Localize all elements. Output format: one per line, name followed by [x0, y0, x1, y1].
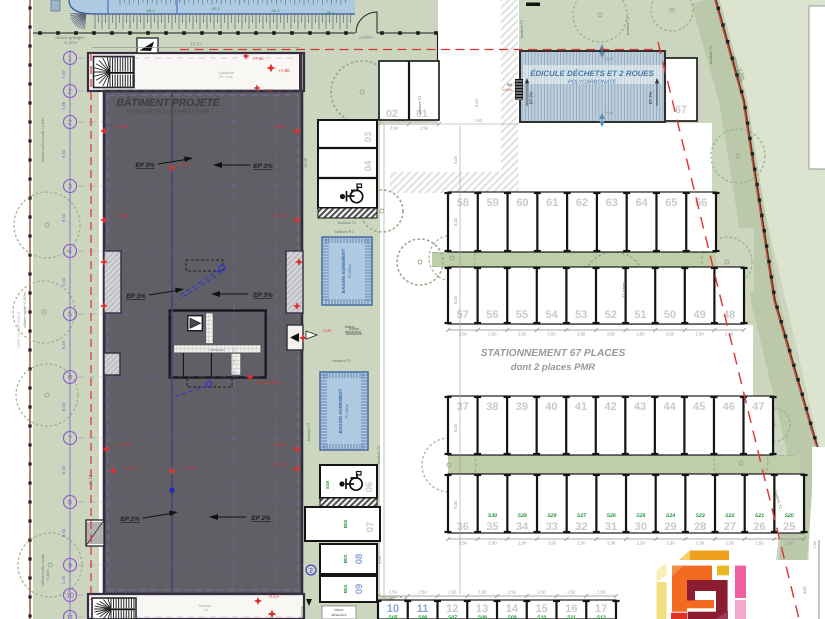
svg-text:4,49: 4,49 — [61, 70, 66, 79]
svg-text:S20: S20 — [785, 513, 794, 519]
svg-text:bordure P1: bordure P1 — [333, 359, 352, 363]
svg-text:36: 36 — [457, 521, 469, 533]
svg-text:67: 67 — [675, 104, 687, 116]
svg-text:4: 4 — [68, 249, 72, 256]
svg-text:S05: S05 — [388, 615, 397, 619]
svg-text:2,50: 2,50 — [607, 541, 616, 546]
svg-text:13: 13 — [476, 603, 488, 615]
svg-text:41: 41 — [575, 401, 587, 413]
svg-text:EP 2%: EP 2% — [120, 516, 140, 523]
svg-text:2,50: 2,50 — [597, 590, 606, 595]
svg-text:bordure T2: bordure T2 — [418, 96, 422, 115]
svg-text:clôture treillis soudé: clôture treillis soudé — [41, 554, 45, 586]
svg-text:S26: S26 — [607, 513, 616, 519]
svg-text:2,50: 2,50 — [637, 541, 646, 546]
svg-text:S09: S09 — [507, 615, 516, 619]
svg-text:ÉTANCHÉITÉ AUTOPROTÉGÉE: ÉTANCHÉITÉ AUTOPROTÉGÉE — [127, 109, 210, 116]
svg-text:bordure T2: bordure T2 — [520, 20, 524, 39]
svg-text:5,00: 5,00 — [453, 500, 458, 509]
svg-text:+10,96: +10,96 — [117, 442, 131, 447]
svg-text:2,50: 2,50 — [567, 590, 576, 595]
svg-text:2,50: 2,50 — [577, 541, 586, 546]
svg-text:12: 12 — [446, 603, 458, 615]
svg-text:S29: S29 — [518, 513, 527, 519]
svg-text:béton: béton — [335, 608, 344, 612]
svg-text:43: 43 — [634, 401, 646, 413]
svg-text:6,00: 6,00 — [377, 555, 382, 564]
svg-text:bordure T2: bordure T2 — [338, 221, 357, 225]
svg-text:63: 63 — [606, 197, 618, 209]
svg-text:désactivé: désactivé — [331, 613, 346, 617]
svg-text:2,50: 2,50 — [389, 590, 398, 595]
svg-text:6,20: 6,20 — [474, 98, 479, 107]
svg-text:S23: S23 — [696, 513, 705, 519]
svg-text:31: 31 — [605, 521, 617, 533]
svg-text:25: 25 — [783, 521, 795, 533]
svg-text:EP 3%: EP 3% — [253, 292, 273, 299]
svg-text:+7,45: +7,45 — [252, 56, 264, 61]
svg-text:18,98: 18,98 — [605, 111, 614, 115]
svg-text:2,50: 2,50 — [548, 541, 557, 546]
svg-text:02: 02 — [386, 108, 398, 120]
svg-text:17: 17 — [595, 603, 607, 615]
svg-text:EP 3%: EP 3% — [648, 91, 653, 104]
svg-text:37: 37 — [457, 401, 469, 413]
svg-text:42: 42 — [604, 401, 616, 413]
svg-text:28: 28 — [694, 521, 706, 533]
svg-text:8,40: 8,40 — [61, 402, 66, 411]
svg-text:44: 44 — [664, 401, 677, 413]
svg-text:+10,96: +10,96 — [115, 124, 129, 129]
svg-text:07: 07 — [365, 522, 376, 533]
svg-text:EP 3%: EP 3% — [135, 162, 155, 169]
svg-text:béton: béton — [345, 325, 355, 329]
svg-text:57: 57 — [457, 309, 469, 321]
svg-text:clôture rigide +1,60m: clôture rigide +1,60m — [23, 292, 27, 328]
svg-text:2,50: 2,50 — [666, 541, 675, 546]
svg-text:03: 03 — [363, 132, 374, 143]
svg-text:3: 3 — [68, 184, 72, 191]
svg-text:2,50: 2,50 — [478, 590, 487, 595]
svg-text:S22: S22 — [725, 513, 734, 519]
svg-text:10: 10 — [387, 603, 399, 615]
svg-text:32: 32 — [575, 521, 587, 533]
svg-text:2,50: 2,50 — [419, 590, 428, 595]
svg-text:5,00: 5,00 — [453, 423, 458, 432]
svg-text:39: 39 — [516, 401, 528, 413]
svg-text:EP 3%: EP 3% — [529, 91, 534, 104]
svg-text:6,40: 6,40 — [61, 149, 66, 158]
svg-text:16,68: 16,68 — [303, 157, 308, 168]
svg-text:+7,4: +7,4 — [202, 608, 209, 612]
svg-text:2,50: 2,50 — [488, 541, 497, 546]
svg-text:2,50: 2,50 — [607, 332, 616, 337]
svg-text:-46,4: -46,4 — [145, 8, 155, 13]
svg-text:+10,96: +10,96 — [272, 124, 286, 129]
svg-text:bordure T2: bordure T2 — [377, 446, 381, 465]
svg-text:+10,98: +10,98 — [115, 213, 129, 218]
svg-text:bordure T2: bordure T2 — [626, 17, 630, 36]
svg-text:53: 53 — [575, 309, 587, 321]
svg-text:62: 62 — [576, 197, 588, 209]
svg-text:2,50: 2,50 — [538, 590, 547, 595]
svg-text:2,50: 2,50 — [577, 332, 586, 337]
svg-text:+7,80: +7,80 — [278, 68, 290, 73]
svg-text:2,50: 2,50 — [696, 541, 705, 546]
svg-text:POLYCARBONATE: POLYCARBONATE — [568, 80, 616, 86]
svg-text:+11,06: +11,06 — [272, 462, 285, 467]
svg-text:08: 08 — [354, 554, 365, 565]
svg-text:dont 2 places PMR: dont 2 places PMR — [511, 362, 596, 373]
svg-text:+1,60m: +1,60m — [46, 569, 50, 581]
svg-text:-46,4: -46,4 — [210, 6, 220, 11]
svg-text:2,50: 2,50 — [448, 590, 457, 595]
svg-text:14: 14 — [506, 603, 519, 615]
svg-text:S07: S07 — [448, 615, 458, 619]
svg-text:38: 38 — [486, 401, 498, 413]
svg-text:1': 1' — [67, 89, 72, 96]
svg-text:S06: S06 — [418, 615, 427, 619]
svg-text:58: 58 — [457, 197, 469, 209]
svg-text:2,50: 2,50 — [508, 590, 517, 595]
svg-text:2,50: 2,50 — [696, 332, 705, 337]
svg-text:33: 33 — [546, 521, 558, 533]
svg-text:2,50: 2,50 — [518, 332, 527, 337]
svg-text:désactivé: désactivé — [345, 330, 361, 334]
svg-text:34: 34 — [516, 521, 529, 533]
svg-text:+7,50: +7,50 — [263, 88, 274, 93]
svg-text:2,88: 2,88 — [61, 101, 66, 110]
svg-text:+10,91: +10,91 — [183, 465, 197, 470]
svg-text:+1,5%: +1,5% — [502, 88, 512, 92]
svg-text:56: 56 — [486, 309, 498, 321]
svg-text:bordure T2: bordure T2 — [709, 46, 713, 65]
svg-text:9: 9 — [68, 563, 72, 570]
svg-text:5: 5 — [68, 312, 72, 319]
svg-text:04: 04 — [363, 160, 374, 171]
svg-text:8,40: 8,40 — [61, 528, 66, 537]
svg-text:11: 11 — [66, 615, 73, 619]
svg-text:16: 16 — [565, 603, 577, 615]
svg-text:P=30cm: P=30cm — [348, 264, 352, 278]
svg-text:46: 46 — [723, 401, 735, 413]
svg-text:bordure T2: bordure T2 — [307, 423, 311, 442]
svg-text:6: 6 — [68, 375, 72, 382]
svg-text:B02: B02 — [343, 519, 348, 528]
svg-text:2: 2 — [68, 120, 72, 127]
svg-text:S21: S21 — [755, 513, 764, 519]
svg-text:-0,00: -0,00 — [322, 328, 332, 333]
svg-text:2,30: 2,30 — [61, 575, 66, 584]
svg-text:64: 64 — [635, 197, 648, 209]
svg-text:S08: S08 — [478, 615, 487, 619]
svg-text:40: 40 — [545, 401, 557, 413]
svg-text:30: 30 — [635, 521, 647, 533]
svg-text:2: 2 — [309, 568, 313, 575]
svg-text:61: 61 — [546, 197, 558, 209]
svg-text:clôture treillis soudé +1,60m: clôture treillis soudé +1,60m — [41, 118, 45, 163]
svg-text:+11,06: +11,06 — [124, 465, 137, 470]
svg-text:2,50: 2,50 — [488, 332, 497, 337]
svg-text:S10: S10 — [537, 615, 546, 619]
svg-text:45: 45 — [693, 401, 705, 413]
svg-text:BASSIN AGREMENT: BASSIN AGREMENT — [341, 248, 346, 293]
svg-text:S25: S25 — [636, 513, 645, 519]
svg-text:8,40: 8,40 — [61, 213, 66, 222]
svg-text:51: 51 — [634, 309, 646, 321]
svg-text:portillon: portillon — [359, 35, 373, 40]
svg-text:50: 50 — [664, 309, 676, 321]
svg-text:bordure P1: bordure P1 — [335, 230, 354, 234]
svg-text:29: 29 — [664, 521, 676, 533]
svg-text:7,00: 7,00 — [474, 118, 483, 123]
svg-text:8: 8 — [68, 500, 72, 507]
svg-text:CANIVEAU: CANIVEAU — [209, 348, 224, 352]
svg-text:B03: B03 — [343, 554, 348, 563]
svg-text:S11: S11 — [567, 615, 576, 619]
svg-text:06: 06 — [364, 482, 375, 493]
svg-text:52: 52 — [605, 309, 617, 321]
svg-text:5,00: 5,00 — [453, 295, 458, 304]
svg-text:2,50: 2,50 — [666, 332, 675, 337]
svg-text:60: 60 — [516, 197, 528, 209]
svg-text:+10,91: +10,91 — [178, 162, 192, 167]
svg-text:47: 47 — [752, 401, 764, 413]
svg-text:+10,92 (PHE): +10,92 (PHE) — [256, 380, 282, 385]
svg-text:-46,4: -46,4 — [270, 8, 280, 13]
svg-text:32 arbres: 32 arbres — [622, 282, 626, 298]
svg-text:10: 10 — [66, 593, 74, 600]
svg-text:26: 26 — [753, 521, 765, 533]
svg-text:B04: B04 — [343, 584, 348, 593]
svg-text:+10,96: +10,96 — [272, 442, 286, 447]
svg-text:27: 27 — [724, 521, 736, 533]
svg-text:5,00: 5,00 — [453, 217, 458, 226]
svg-text:6,40: 6,40 — [61, 340, 66, 349]
svg-text:EP 3%: EP 3% — [126, 293, 146, 300]
svg-text:1,50: 1,50 — [813, 541, 817, 548]
svg-text:7: 7 — [68, 436, 72, 443]
svg-text:49: 49 — [693, 309, 705, 321]
svg-text:65: 65 — [665, 197, 677, 209]
svg-text:2,50: 2,50 — [548, 332, 557, 337]
svg-text:P=30cm: P=30cm — [345, 404, 349, 418]
svg-text:2,50: 2,50 — [420, 126, 429, 131]
svg-text:S24: S24 — [666, 513, 675, 519]
svg-text:09: 09 — [354, 584, 365, 595]
svg-text:2,50: 2,50 — [755, 541, 764, 546]
svg-text:S19: S19 — [325, 481, 330, 490]
svg-text:bordure: bordure — [300, 606, 304, 618]
svg-text:BASSIN AGREMENT: BASSIN AGREMENT — [338, 388, 343, 433]
svg-text:5,00: 5,00 — [453, 155, 458, 164]
svg-text:BA: BA — [507, 83, 512, 87]
svg-text:2,50: 2,50 — [785, 541, 794, 546]
svg-text:2,50: 2,50 — [726, 541, 735, 546]
svg-text:1: 1 — [68, 56, 72, 63]
svg-text:R = 4 cm: R = 4 cm — [220, 75, 233, 79]
svg-text:15: 15 — [536, 603, 548, 615]
svg-text:S28: S28 — [547, 513, 556, 519]
svg-text:ÉDICULE DÉCHETS ET 2 ROUES: ÉDICULE DÉCHETS ET 2 ROUES — [530, 69, 654, 78]
svg-text:59: 59 — [487, 197, 499, 209]
svg-text:2,50: 2,50 — [636, 332, 645, 337]
svg-text:+1,20m: +1,20m — [63, 40, 78, 45]
svg-text:6,40: 6,40 — [61, 277, 66, 286]
svg-text:-46,4: -46,4 — [325, 10, 335, 15]
svg-text:BÂTIMENT PROJETÉ: BÂTIMENT PROJETÉ — [117, 96, 221, 109]
svg-text:STATIONNEMENT 67 PLACES: STATIONNEMENT 67 PLACES — [481, 348, 626, 359]
svg-text:55: 55 — [516, 309, 528, 321]
svg-text:EP 2%: EP 2% — [251, 515, 271, 522]
svg-text:S27: S27 — [577, 513, 587, 519]
svg-text:+10,98: +10,98 — [272, 213, 286, 218]
svg-text:11: 11 — [417, 603, 429, 615]
svg-text:S30: S30 — [488, 513, 497, 519]
svg-text:18,07: 18,07 — [190, 42, 202, 47]
svg-text:EP 3%: EP 3% — [253, 163, 273, 170]
svg-text:18,98: 18,98 — [605, 57, 614, 61]
svg-text:2,50: 2,50 — [390, 126, 399, 131]
svg-text:2,50: 2,50 — [518, 541, 527, 546]
svg-text:S12: S12 — [597, 615, 606, 619]
svg-text:54: 54 — [545, 309, 558, 321]
svg-text:5,07: 5,07 — [803, 587, 807, 594]
svg-text:35: 35 — [486, 521, 498, 533]
svg-text:6,40: 6,40 — [61, 465, 66, 474]
